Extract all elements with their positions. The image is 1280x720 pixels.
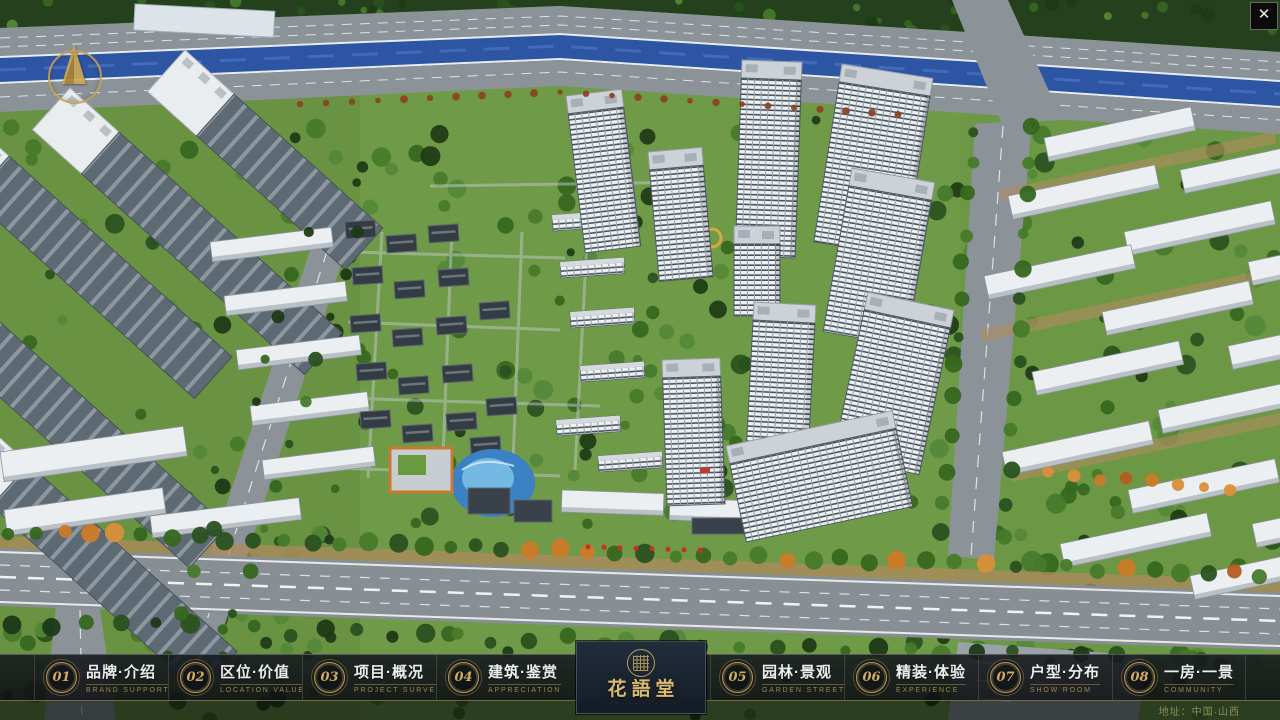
nav-item-sublabel: SHOW ROOM bbox=[1030, 684, 1100, 694]
aerial-site-plan bbox=[0, 0, 1280, 720]
item-number-badge: 06 bbox=[856, 662, 887, 693]
nav-item-label: 精装·体验 bbox=[896, 661, 966, 682]
nav-item-garden[interactable]: 05 园林·景观 GARDEN STREET bbox=[710, 655, 844, 700]
presentation-window: ✕ 01 品牌·介绍 BRAND SUPPORT 02 区位·价值 LOCATI… bbox=[0, 0, 1280, 720]
nav-item-location[interactable]: 02 区位·价值 LOCATION VALUE bbox=[168, 655, 302, 700]
nav-item-floorplan[interactable]: 07 户型·分布 SHOW ROOM bbox=[978, 655, 1112, 700]
item-number-badge: 01 bbox=[46, 662, 77, 693]
nav-item-sublabel: GARDEN STREET bbox=[762, 684, 844, 694]
nav-item-sublabel: COMMUNITY bbox=[1164, 684, 1234, 694]
nav-item-sublabel: EXPERIENCE bbox=[896, 684, 966, 694]
nav-item-label: 建筑·鉴赏 bbox=[488, 661, 561, 682]
nav-item-brand[interactable]: 01 品牌·介绍 BRAND SUPPORT bbox=[34, 655, 168, 700]
nav-item-sublabel: PROJECT SURVEY bbox=[354, 684, 436, 694]
nav-spacer bbox=[0, 655, 34, 700]
nav-item-views[interactable]: 08 一房·一景 COMMUNITY bbox=[1112, 655, 1246, 700]
close-button[interactable]: ✕ bbox=[1250, 2, 1278, 30]
nav-item-interior[interactable]: 06 精装·体验 EXPERIENCE bbox=[844, 655, 978, 700]
nav-item-architecture[interactable]: 04 建筑·鉴赏 APPRECIATION bbox=[436, 655, 570, 700]
logo-tagline: · · · · · · · · · · · · bbox=[604, 702, 678, 706]
seal-icon bbox=[627, 649, 655, 677]
nav-item-label: 区位·价值 bbox=[220, 661, 302, 682]
item-number-badge: 05 bbox=[722, 662, 753, 693]
nav-item-sublabel: BRAND SUPPORT bbox=[86, 684, 168, 694]
close-icon: ✕ bbox=[1258, 6, 1271, 23]
address-text: 地址：中国·山西 bbox=[1159, 703, 1240, 718]
item-number-badge: 08 bbox=[1124, 662, 1155, 693]
compass-north-icon bbox=[46, 42, 102, 104]
item-number-badge: 07 bbox=[990, 662, 1021, 693]
nav-item-sublabel: APPRECIATION bbox=[488, 684, 561, 694]
nav-spacer bbox=[1246, 655, 1280, 700]
nav-item-label: 项目·概况 bbox=[354, 661, 436, 682]
nav-item-project[interactable]: 03 项目·概况 PROJECT SURVEY bbox=[302, 655, 436, 700]
compass-ring bbox=[48, 50, 102, 104]
item-number-badge: 03 bbox=[314, 662, 345, 693]
nav-item-label: 园林·景观 bbox=[762, 661, 844, 682]
logo-panel[interactable]: 花語堂 · · · · · · · · · · · · bbox=[576, 641, 706, 714]
nav-item-label: 户型·分布 bbox=[1030, 661, 1100, 682]
nav-item-label: 一房·一景 bbox=[1164, 661, 1234, 682]
nav-item-label: 品牌·介绍 bbox=[86, 661, 168, 682]
item-number-badge: 02 bbox=[180, 662, 211, 693]
nav-item-sublabel: LOCATION VALUE bbox=[220, 684, 302, 694]
item-number-badge: 04 bbox=[448, 662, 479, 693]
project-logo-text: 花語堂 bbox=[602, 680, 679, 699]
